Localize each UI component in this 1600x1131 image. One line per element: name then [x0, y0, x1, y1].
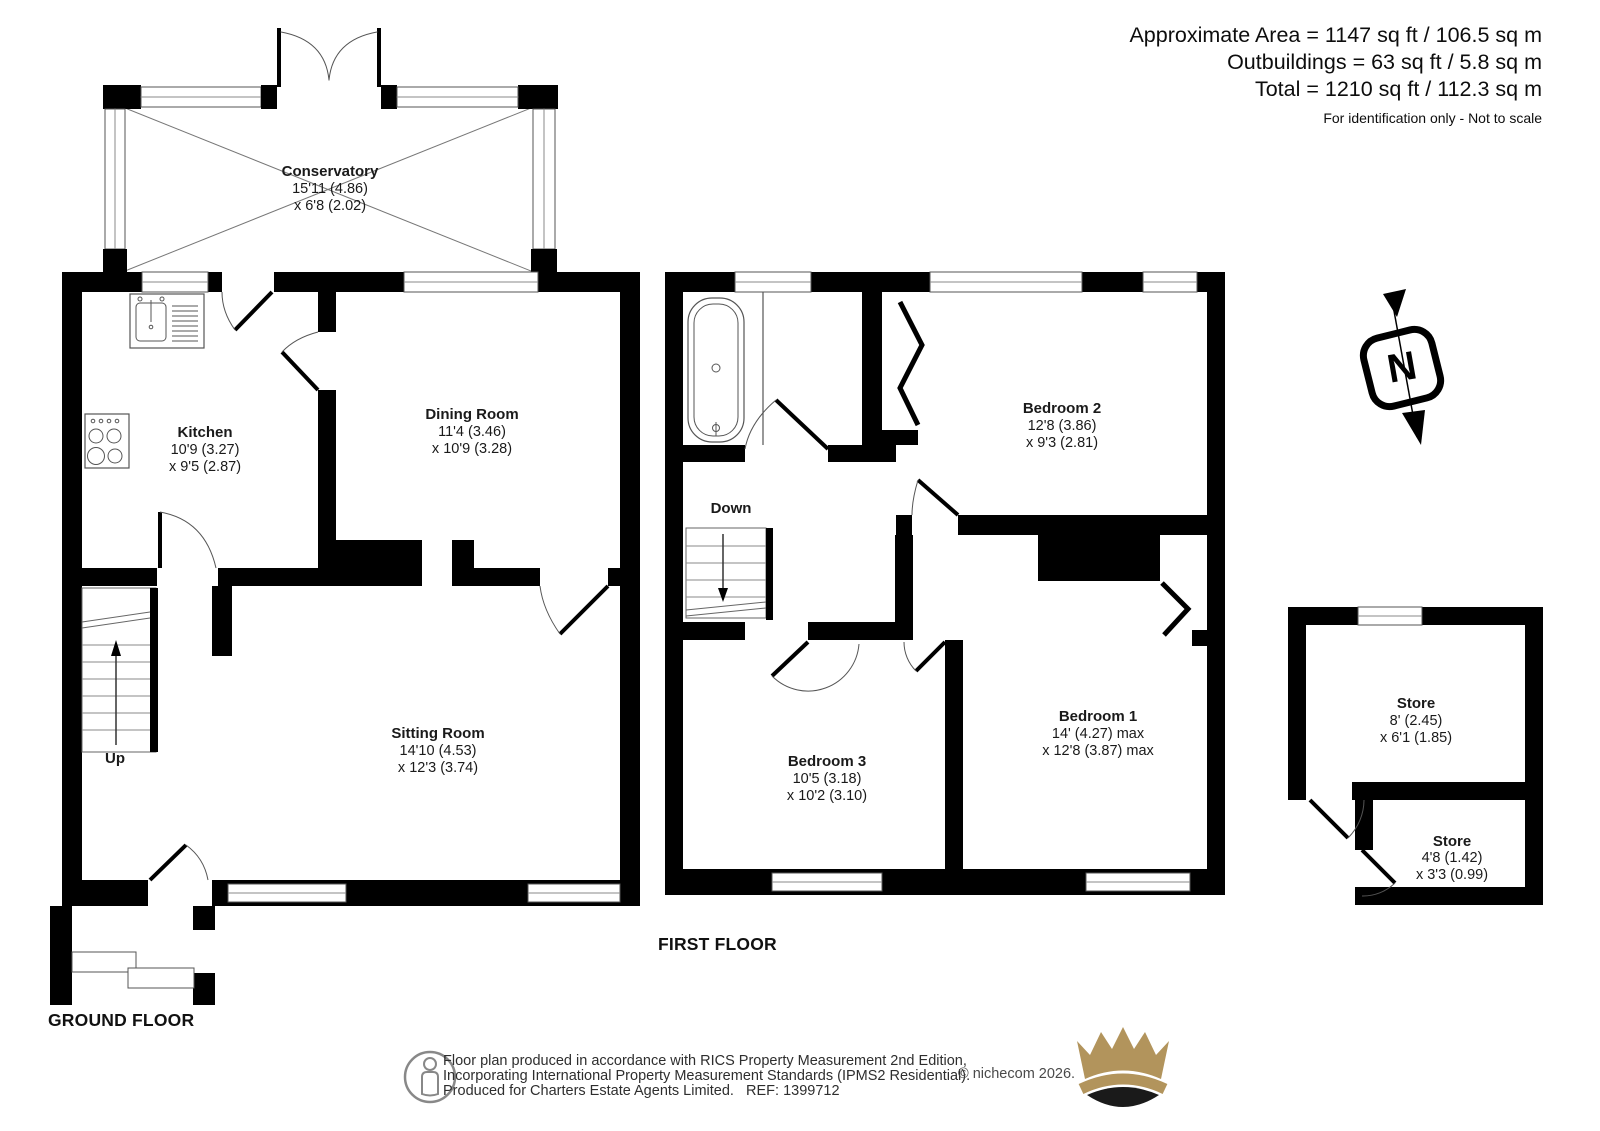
store-2-label: Store: [1433, 833, 1471, 850]
kitchen-hob-icon: [85, 414, 129, 468]
sitting-room-label: Sitting Room: [391, 725, 484, 742]
total-area-text: Total = 1210 sq ft / 112.3 sq m: [1129, 76, 1542, 103]
store-1-dim-2: x 6'1 (1.85): [1380, 730, 1452, 747]
charters-crown-logo-icon: [1077, 1027, 1169, 1107]
kitchen-dim-2: x 9'5 (2.87): [169, 459, 241, 476]
store-2-dim-2: x 3'3 (0.99): [1416, 867, 1488, 884]
sitting-room-dim-2: x 12'3 (3.74): [398, 760, 478, 777]
bedroom-3-dim-1: 10'5 (3.18): [793, 771, 862, 788]
bedroom-2-dim-1: 12'8 (3.86): [1028, 418, 1097, 435]
conservatory-label: Conservatory: [282, 163, 379, 180]
kitchen-label: Kitchen: [177, 424, 232, 441]
footer-produced-for-line: Produced for Charters Estate Agents Limi…: [443, 1083, 840, 1099]
footer-rics-line: Floor plan produced in accordance with R…: [443, 1053, 967, 1069]
bedroom-2-label: Bedroom 2: [1023, 400, 1101, 417]
bedroom-1-label: Bedroom 1: [1059, 708, 1137, 725]
stairs-down-label: Down: [711, 500, 752, 517]
identification-note: For identification only - Not to scale: [1129, 110, 1542, 126]
area-summary: Approximate Area = 1147 sq ft / 106.5 sq…: [1129, 22, 1542, 126]
dining-room-label: Dining Room: [425, 406, 518, 423]
outbuildings-area-text: Outbuildings = 63 sq ft / 5.8 sq m: [1129, 49, 1542, 76]
floorplan-page: Approximate Area = 1147 sq ft / 106.5 sq…: [0, 0, 1600, 1131]
staircase-up: [82, 588, 158, 752]
footer-ipms-line: Incorporating International Property Mea…: [443, 1068, 970, 1084]
first-floor-label: FIRST FLOOR: [658, 934, 777, 955]
store-2-dim-1: 4'8 (1.42): [1422, 850, 1483, 867]
approximate-area-text: Approximate Area = 1147 sq ft / 106.5 sq…: [1129, 22, 1542, 49]
sitting-room-dim-1: 14'10 (4.53): [400, 743, 477, 760]
ground-floor-label: GROUND FLOOR: [48, 1010, 194, 1031]
store-1-label: Store: [1397, 695, 1435, 712]
kitchen-sink-icon: [130, 294, 204, 348]
bathtub-icon: [688, 298, 744, 442]
store-1-dim-1: 8' (2.45): [1390, 713, 1443, 730]
dining-room-dim-2: x 10'9 (3.28): [432, 441, 512, 458]
bedroom-3-dim-2: x 10'2 (3.10): [787, 788, 867, 805]
nichecom-copyright: © nichecom 2026.: [958, 1066, 1075, 1082]
bedroom-3-label: Bedroom 3: [788, 753, 866, 770]
dining-room-dim-1: 11'4 (3.46): [438, 424, 506, 441]
stairs-up-label: Up: [105, 750, 125, 767]
porch-structure: [50, 906, 215, 1005]
conservatory-structure: [103, 30, 558, 274]
bedroom-2-dim-2: x 9'3 (2.81): [1026, 435, 1098, 452]
outbuildings-structure: [1288, 607, 1543, 905]
bedroom-1-dim-2: x 12'8 (3.87) max: [1042, 743, 1154, 760]
kitchen-dim-1: 10'9 (3.27): [171, 442, 240, 459]
conservatory-dim-2: x 6'8 (2.02): [294, 198, 366, 215]
staircase-down: [686, 528, 773, 620]
conservatory-dim-1: 15'11 (4.86): [292, 181, 368, 198]
floorplan-graphic: [0, 0, 1600, 1131]
bedroom-1-dim-1: 14' (4.27) max: [1052, 726, 1144, 743]
